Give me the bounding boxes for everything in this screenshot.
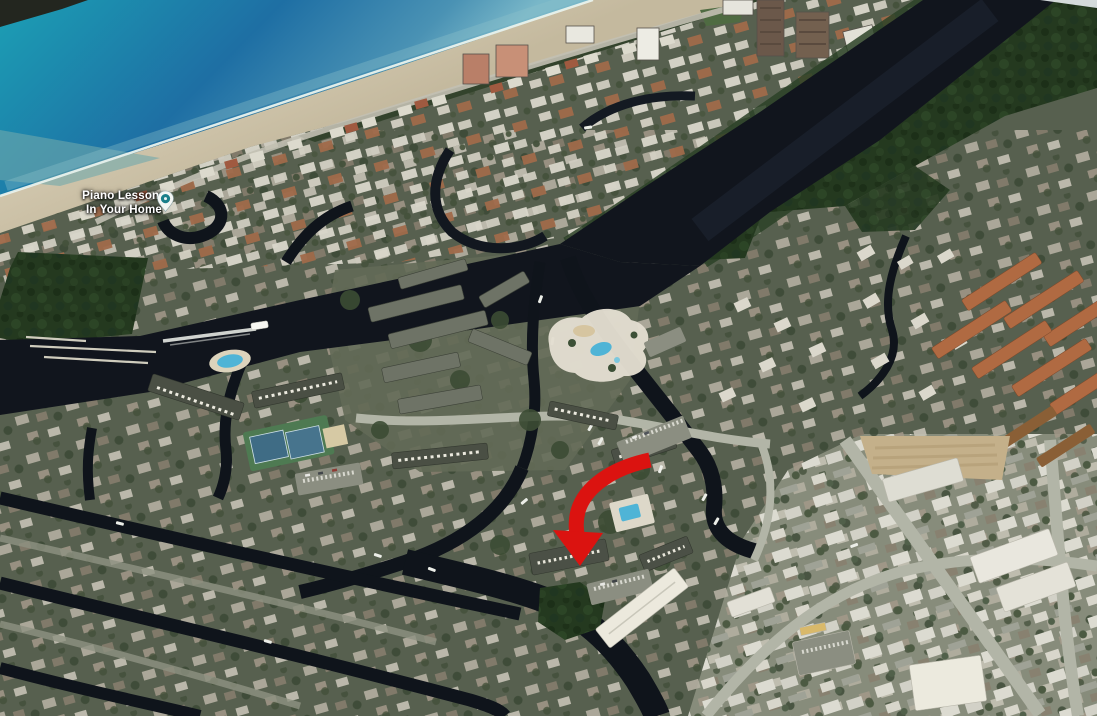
- tower-brick-2: [796, 12, 829, 58]
- satellite-scene: [0, 0, 1097, 716]
- place-pin-icon[interactable]: [157, 190, 174, 213]
- office-white-4: [909, 655, 987, 711]
- tower-white-2: [637, 28, 659, 60]
- canal-stub-2: [88, 428, 92, 500]
- tower-white-1: [566, 26, 594, 43]
- aerial-map[interactable]: Piano Lessons In Your Home: [0, 0, 1097, 716]
- tower-salmon-1: [463, 54, 489, 84]
- tower-salmon-2: [496, 45, 528, 77]
- mangrove-left: [0, 252, 148, 344]
- tower-white-3: [723, 0, 753, 15]
